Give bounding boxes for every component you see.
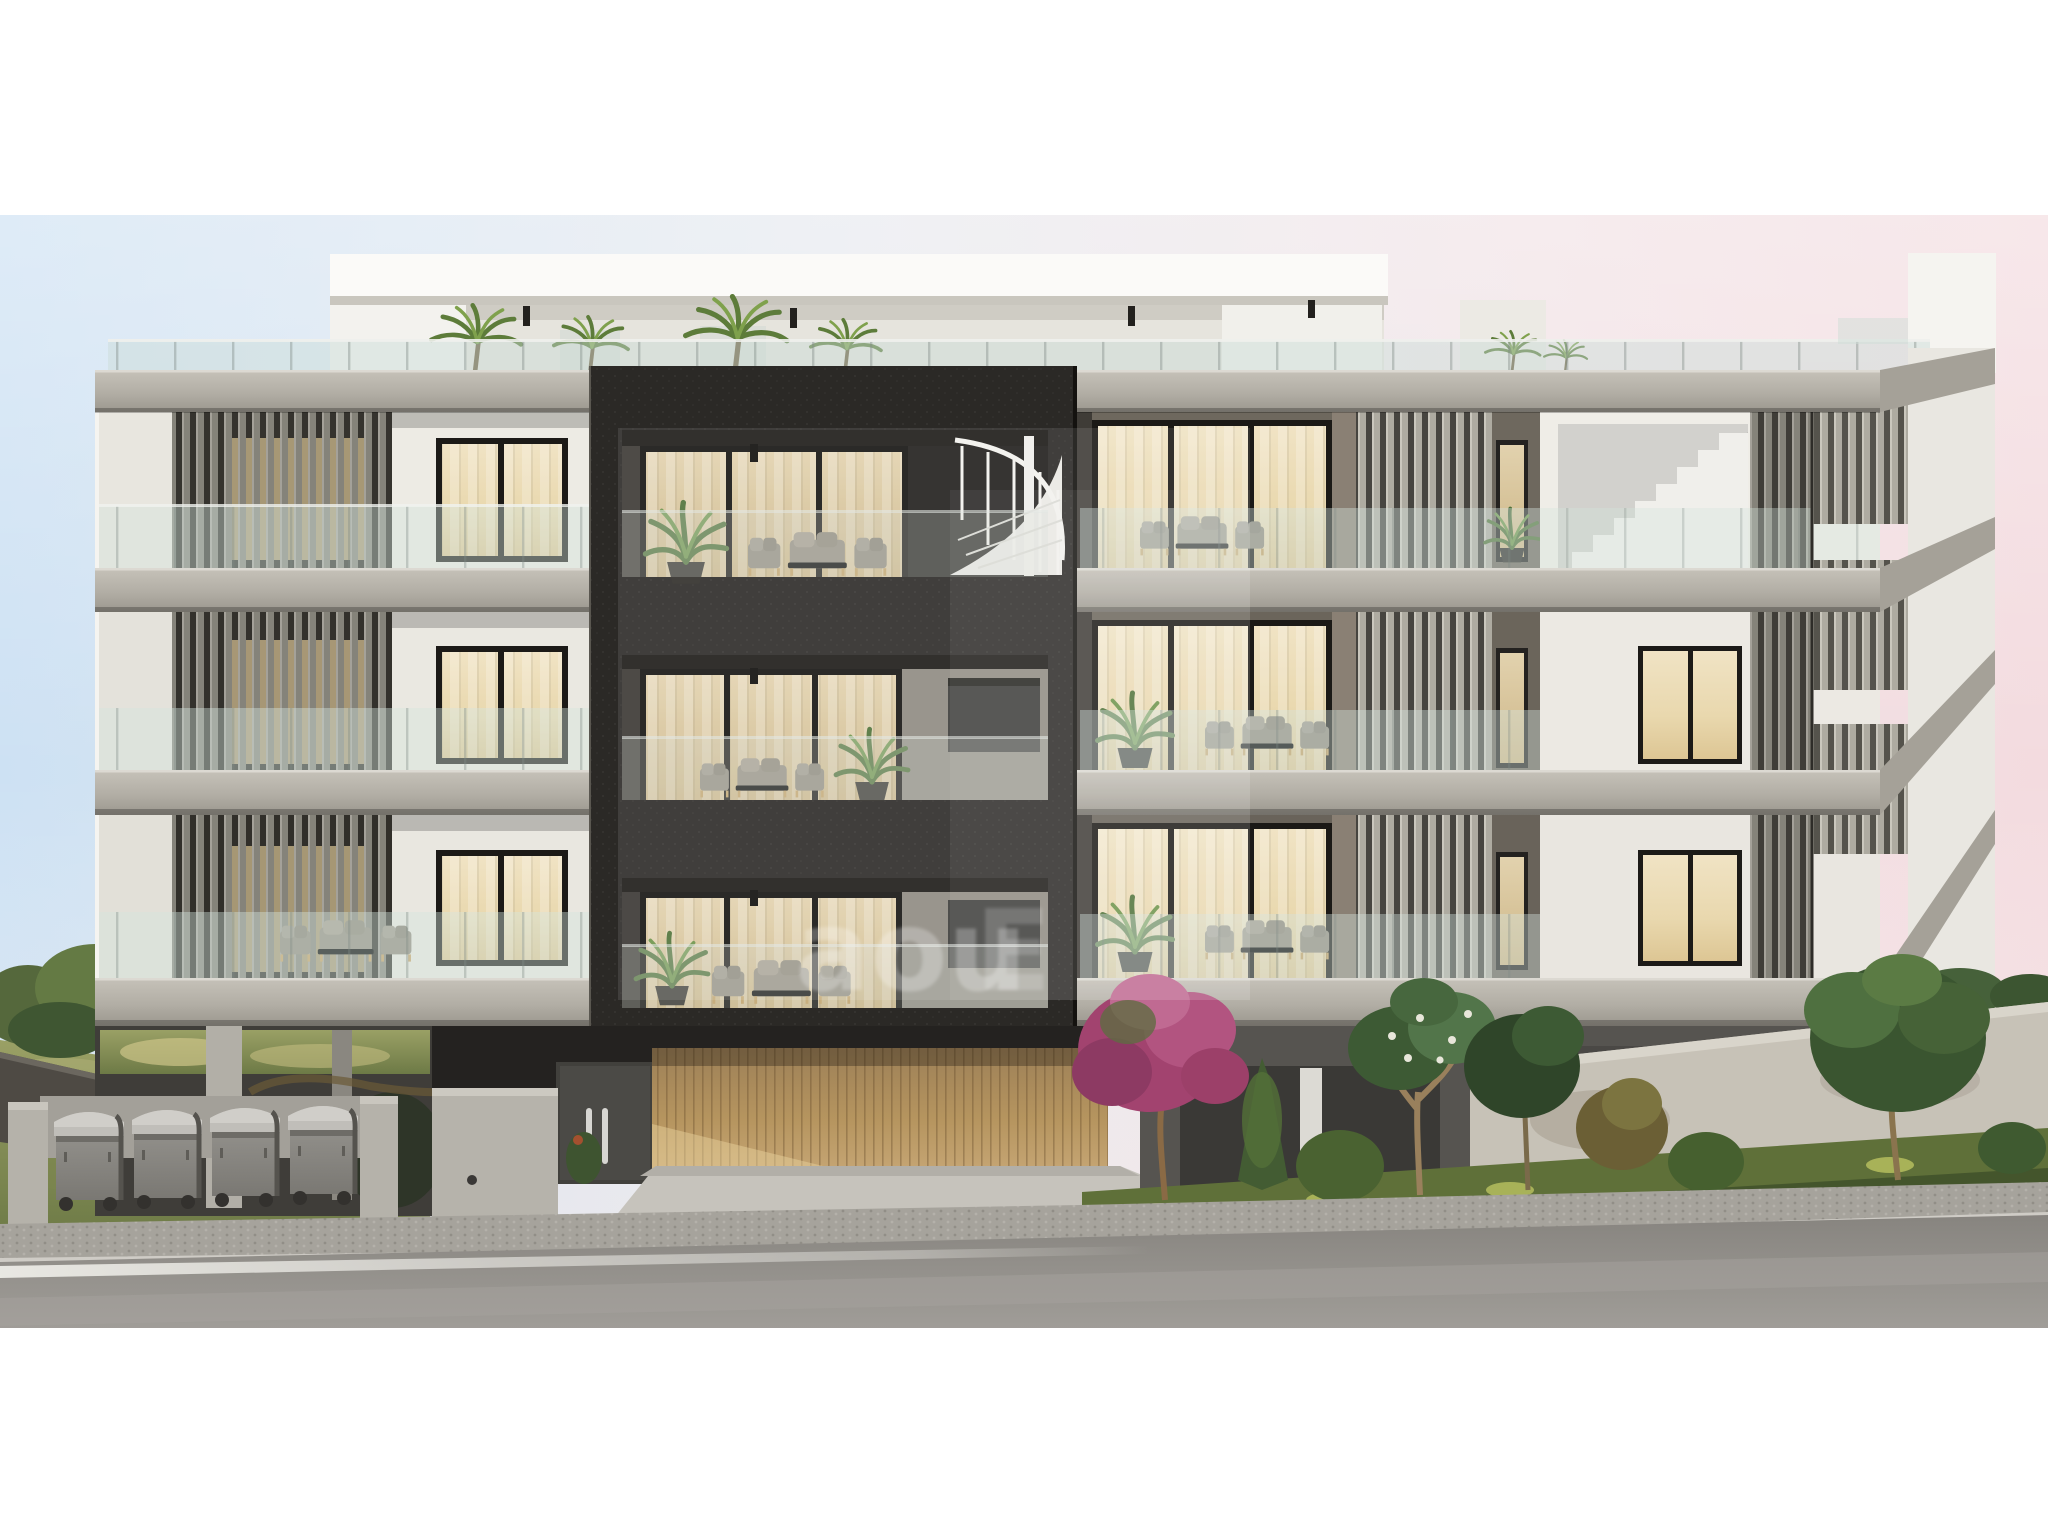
round-bush [1668, 1132, 1744, 1192]
roof-glass-corner [1838, 318, 1908, 344]
window [1638, 646, 1742, 764]
letterbox-bottom [0, 1328, 2048, 1536]
enclosure-wall-right [360, 1096, 398, 1226]
left-wing [95, 412, 590, 978]
round-bush [1296, 1130, 1384, 1202]
render-canvas: aou E [0, 0, 2048, 1536]
window [1638, 850, 1742, 966]
entrance-plant [566, 1132, 602, 1184]
letterbox-top [0, 0, 2048, 215]
enclosure-wall-left [8, 1102, 48, 1238]
trash-bin-4 [288, 1106, 358, 1205]
small-bush [1978, 1122, 2046, 1174]
watermark-partial-letter: E [975, 887, 1052, 1017]
trash-bin-2 [132, 1110, 202, 1209]
watermark: aou E [618, 428, 1250, 1017]
trash-bin-3 [210, 1108, 280, 1207]
architectural-render: aou E [0, 0, 2048, 1536]
trash-bin-1 [54, 1112, 124, 1211]
